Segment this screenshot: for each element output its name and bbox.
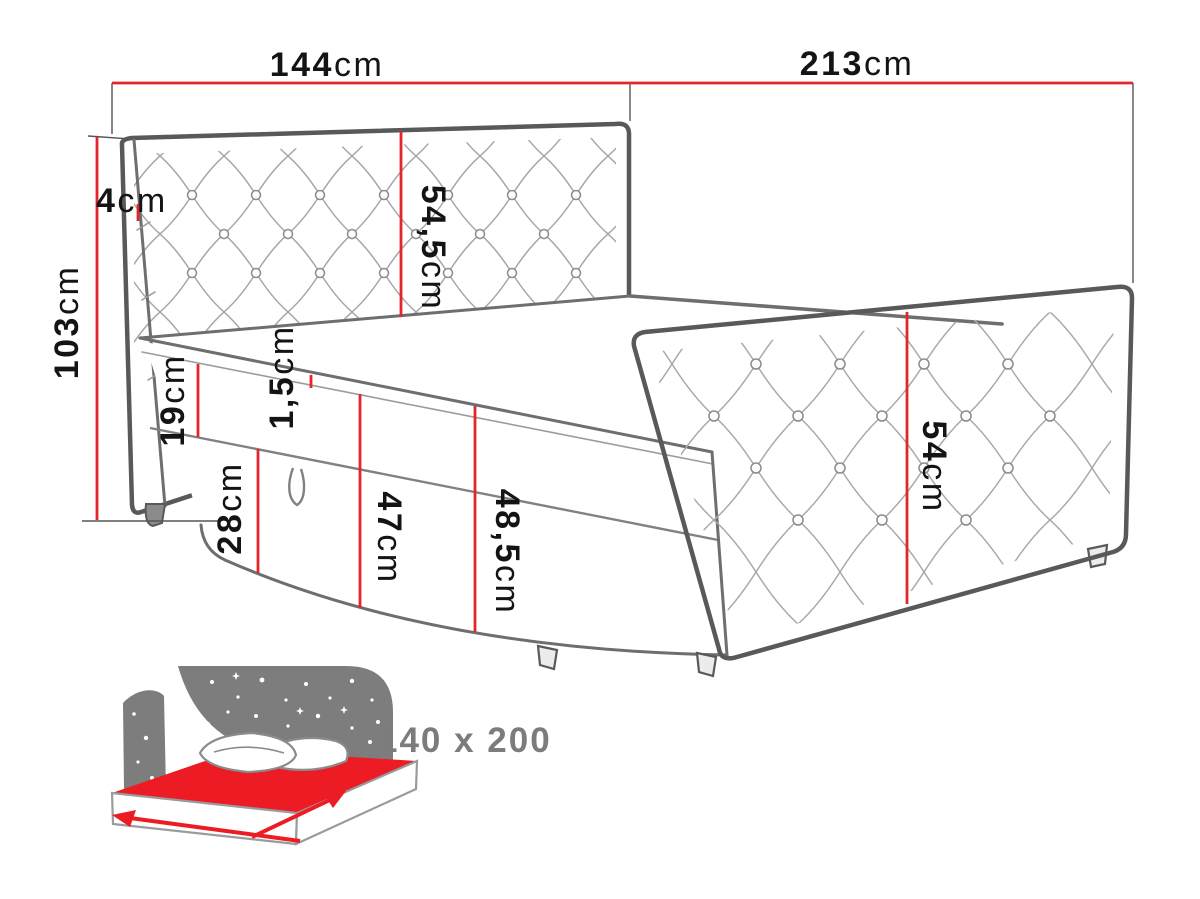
icon-pillows: [200, 733, 348, 772]
dim-label-54: 54cm: [915, 420, 953, 513]
dim-label-1-5: 1,5cm: [263, 324, 301, 429]
bed-dimension-diagram: 144cm 213cm 4cm 103cm 54,5cm 19cm 1,5cm …: [0, 0, 1200, 899]
dim-label-144: 144cm: [270, 46, 385, 84]
bed-diagram-svg: 144cm 213cm 4cm 103cm 54,5cm 19cm 1,5cm …: [0, 0, 1200, 899]
dim-label-54-5: 54,5cm: [414, 185, 452, 312]
dim-label-19: 19cm: [154, 353, 192, 446]
dim-label-213: 213cm: [800, 45, 915, 83]
headboard-foot: [146, 504, 165, 526]
size-badge-label: 140 x 200: [378, 721, 552, 760]
dim-label-4: 4cm: [96, 182, 168, 220]
storage-handle-loop: [289, 468, 304, 505]
dim-label-47: 47cm: [370, 491, 408, 584]
size-icon: [112, 666, 417, 844]
dim-label-28: 28cm: [211, 461, 249, 554]
dim-label-103: 103cm: [48, 265, 86, 380]
dim-label-48-5: 48,5cm: [488, 489, 526, 616]
